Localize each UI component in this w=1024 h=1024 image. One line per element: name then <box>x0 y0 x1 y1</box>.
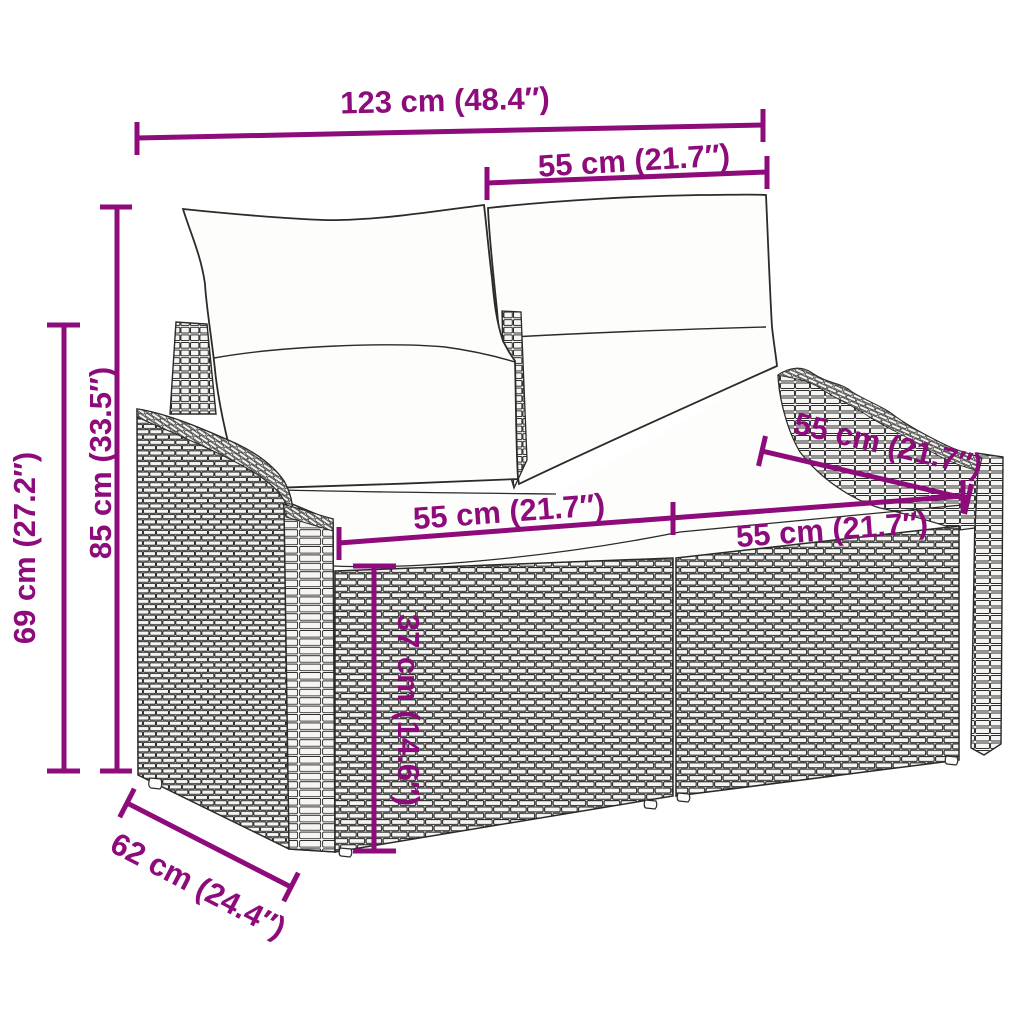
svg-text:123 cm (48.4″): 123 cm (48.4″) <box>340 80 550 120</box>
svg-text:85 cm (33.5″): 85 cm (33.5″) <box>83 367 118 559</box>
svg-text:69 cm (27.2″): 69 cm (27.2″) <box>7 452 42 644</box>
svg-text:37 cm (14.6″): 37 cm (14.6″) <box>391 614 426 806</box>
